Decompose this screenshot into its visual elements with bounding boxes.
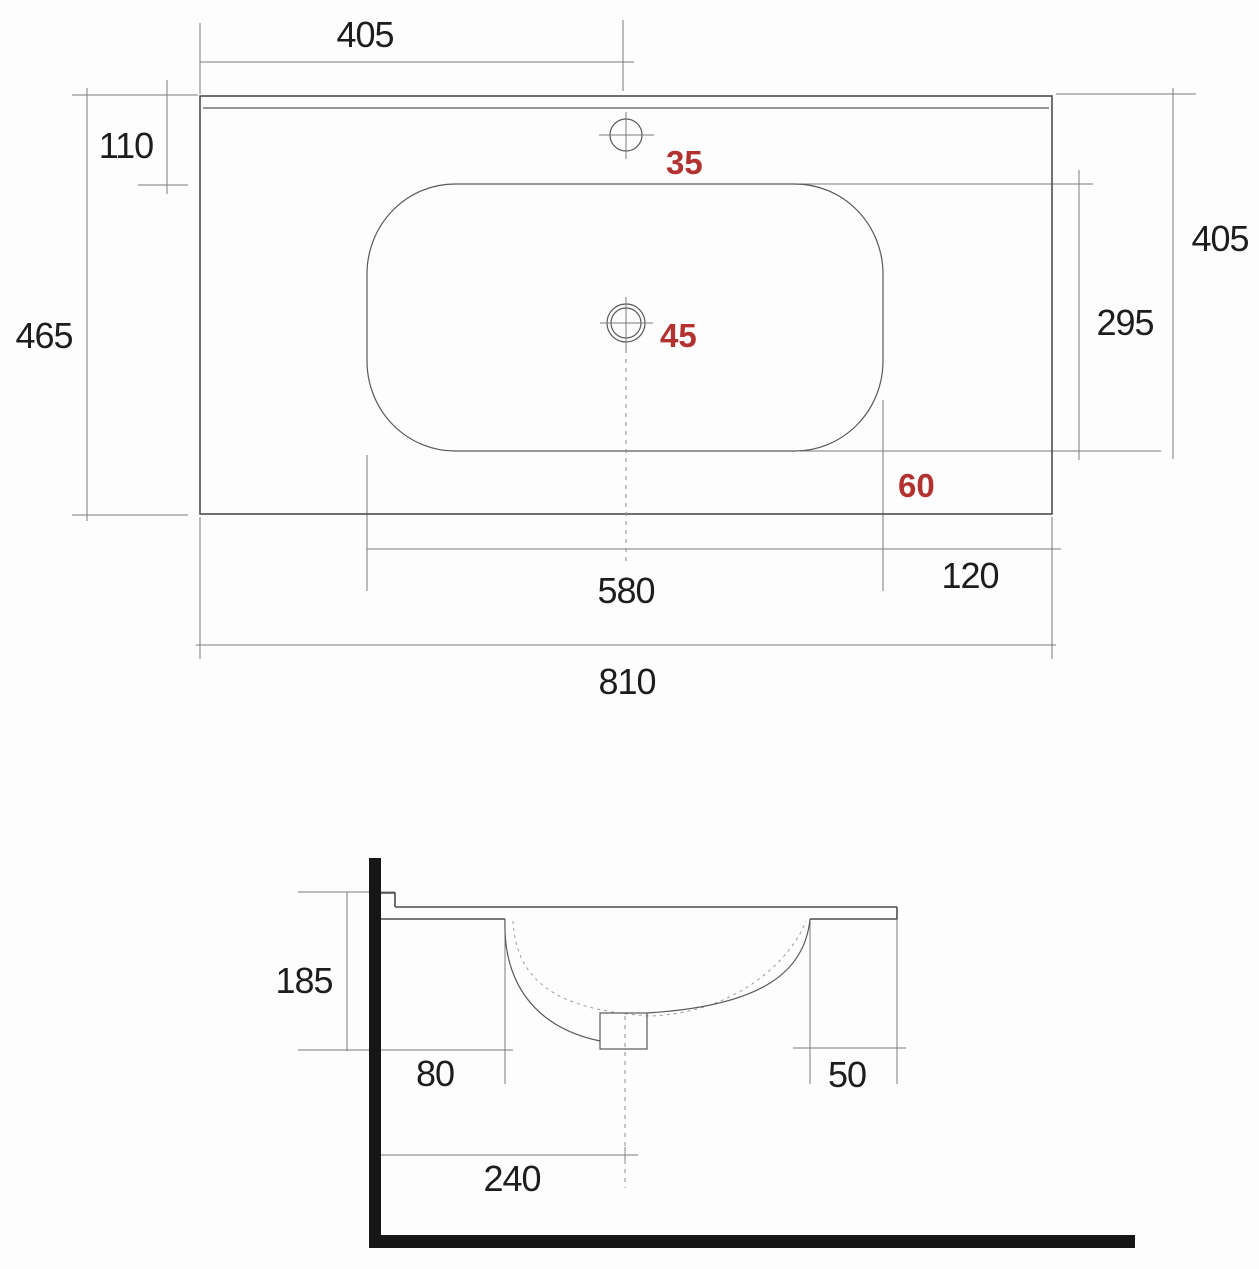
bowl-left-curve (505, 919, 600, 1041)
basin-section-profile (505, 919, 810, 1188)
dim-label-465: 465 (15, 315, 72, 356)
basin-outline (367, 184, 883, 451)
dim-label-185: 185 (275, 960, 332, 1001)
dim-label-45-drain: 45 (660, 317, 697, 354)
drawing-svg: 405 110 465 35 45 405 295 60 580 120 810 (0, 0, 1259, 1269)
counter-profile (381, 893, 897, 919)
floor-line (369, 1235, 1135, 1248)
plan-view: 405 110 465 35 45 405 295 60 580 120 810 (15, 14, 1248, 702)
dim-label-810: 810 (598, 661, 655, 702)
basin-hidden-edge (513, 921, 806, 1016)
faucet-hole (599, 112, 654, 159)
dim-label-35-faucet: 35 (666, 144, 703, 181)
section-view: 185 80 50 240 (275, 858, 1135, 1248)
dim-label-295: 295 (1096, 302, 1153, 343)
dim-label-110: 110 (99, 125, 153, 166)
plan-dimension-lines (72, 20, 1196, 659)
dim-label-80: 80 (416, 1053, 454, 1094)
drain-hole (600, 297, 653, 562)
dim-label-580: 580 (597, 570, 654, 611)
bowl-right-curve (647, 919, 810, 1013)
dim-label-405-right: 405 (1191, 218, 1248, 259)
dim-label-50: 50 (828, 1054, 866, 1095)
dim-label-60: 60 (898, 467, 935, 504)
section-dimension-lines (298, 892, 906, 1164)
dim-label-120: 120 (941, 555, 998, 596)
dim-label-240: 240 (483, 1158, 540, 1199)
backsplash-step (381, 893, 395, 907)
washbasin-technical-drawing: 405 110 465 35 45 405 295 60 580 120 810 (0, 0, 1259, 1269)
drain-trap-box (600, 1013, 647, 1049)
wall-line (369, 858, 381, 1248)
dim-label-405-top: 405 (336, 14, 393, 55)
